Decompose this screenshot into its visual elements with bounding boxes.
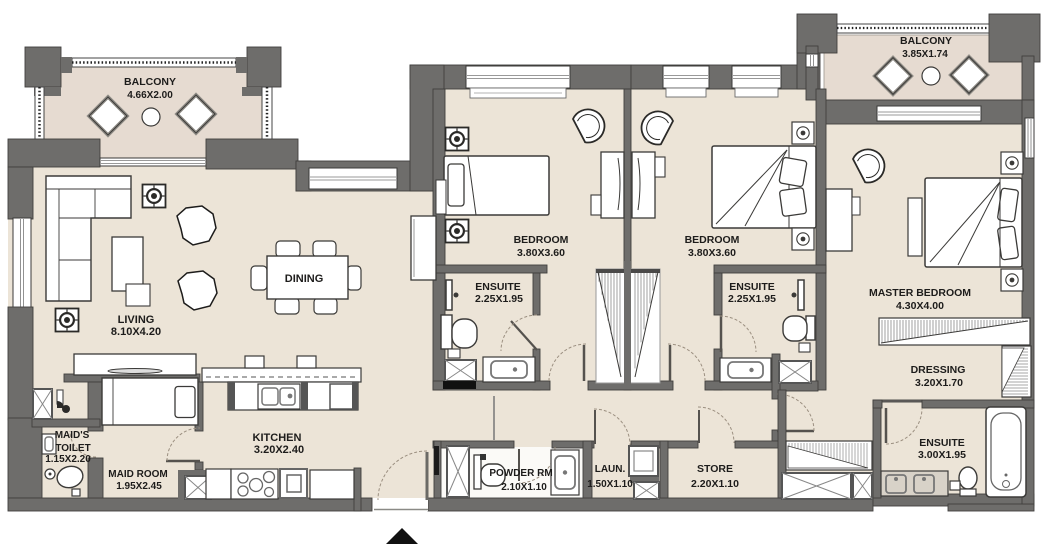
svg-text:4.66X2.00: 4.66X2.00	[127, 90, 173, 101]
svg-text:4.30X4.00: 4.30X4.00	[896, 300, 944, 312]
svg-text:3.20X1.70: 3.20X1.70	[915, 377, 963, 389]
svg-text:1.50X1.10: 1.50X1.10	[587, 479, 633, 490]
svg-text:KITCHEN: KITCHEN	[253, 432, 302, 444]
svg-text:3.80X3.60: 3.80X3.60	[688, 247, 736, 259]
svg-text:2.25X1.95: 2.25X1.95	[728, 293, 776, 305]
svg-text:3.80X3.60: 3.80X3.60	[517, 247, 565, 259]
svg-text:BALCONY: BALCONY	[124, 76, 176, 88]
svg-text:DRESSING: DRESSING	[911, 364, 966, 376]
svg-text:MASTER BEDROOM: MASTER BEDROOM	[869, 287, 971, 299]
svg-text:MAID'S: MAID'S	[55, 430, 90, 441]
svg-text:8.10X4.20: 8.10X4.20	[111, 326, 161, 338]
svg-text:3.20X2.40: 3.20X2.40	[254, 444, 304, 456]
svg-text:MAID ROOM: MAID ROOM	[108, 469, 167, 480]
svg-text:3.85X1.74: 3.85X1.74	[902, 49, 948, 60]
svg-text:2.25X1.95: 2.25X1.95	[475, 293, 523, 305]
svg-text:ENSUITE: ENSUITE	[475, 281, 521, 293]
svg-text:DINING: DINING	[285, 273, 324, 285]
svg-text:2.10X1.10: 2.10X1.10	[501, 482, 547, 493]
svg-text:POWDER RM: POWDER RM	[489, 468, 552, 479]
svg-text:ENSUITE: ENSUITE	[729, 281, 775, 293]
svg-text:ENSUITE: ENSUITE	[919, 437, 965, 449]
svg-text:STORE: STORE	[697, 463, 733, 475]
svg-text:1.95X2.45: 1.95X2.45	[116, 481, 162, 492]
svg-text:3.00X1.95: 3.00X1.95	[918, 449, 966, 461]
svg-text:BEDROOM: BEDROOM	[514, 234, 569, 246]
svg-text:TOILET: TOILET	[55, 443, 90, 454]
svg-text:2.20X1.10: 2.20X1.10	[691, 478, 739, 490]
svg-text:LAUN.: LAUN.	[595, 464, 626, 475]
svg-text:BEDROOM: BEDROOM	[685, 234, 740, 246]
svg-text:1.15X2.20: 1.15X2.20	[45, 454, 91, 465]
svg-text:LIVING: LIVING	[118, 314, 155, 326]
svg-text:BALCONY: BALCONY	[900, 35, 952, 47]
